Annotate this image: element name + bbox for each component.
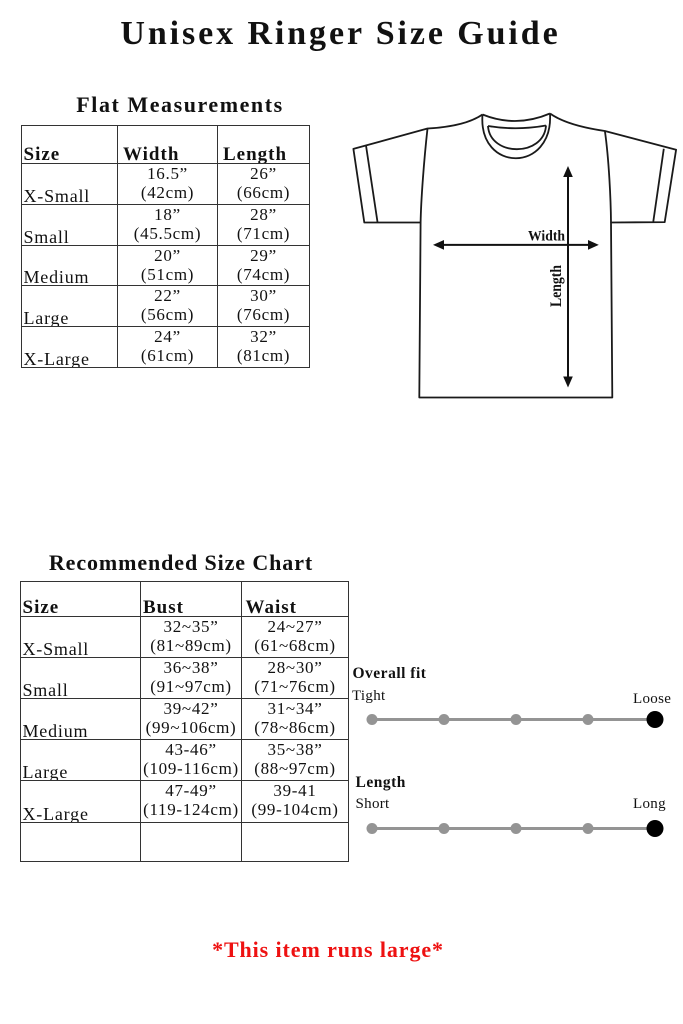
svg-text:Width: Width <box>528 229 566 245</box>
svg-text:Length: Length <box>548 265 565 307</box>
